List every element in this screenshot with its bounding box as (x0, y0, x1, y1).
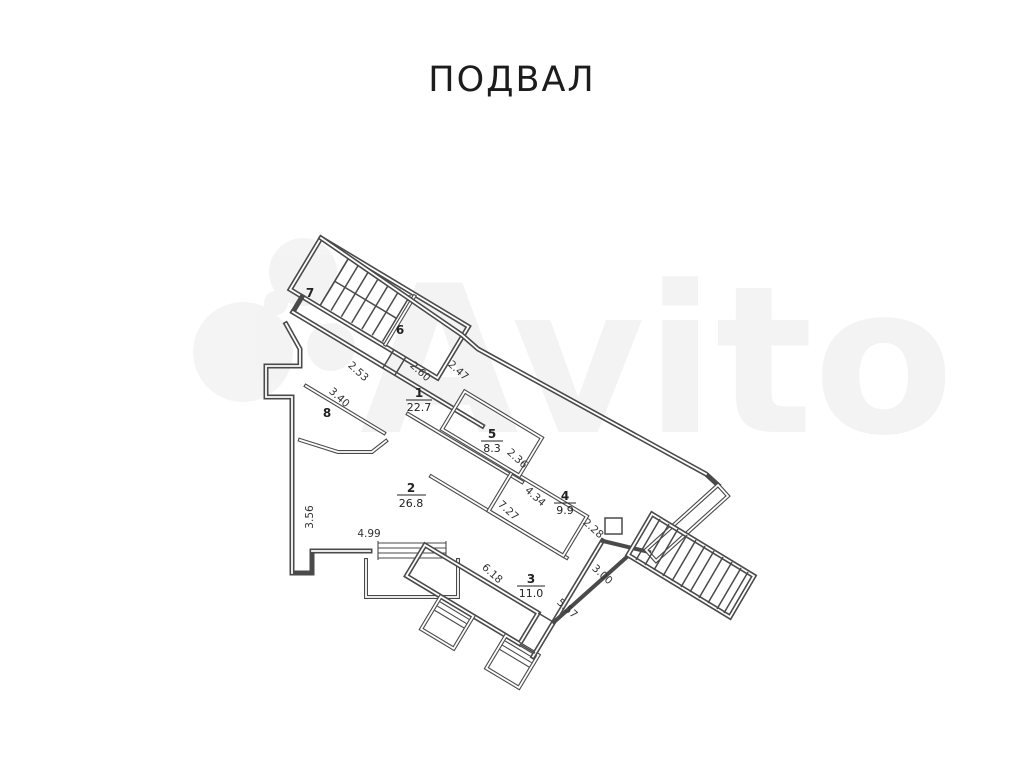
staircase-right-treads (636, 519, 748, 613)
dim-2-28: 2.28 (580, 516, 605, 541)
svg-text:2: 2 (407, 481, 415, 495)
watermark-logo-circles (193, 238, 355, 402)
shaft-box (605, 518, 622, 534)
dim-3-00: 3.00 (589, 562, 614, 587)
room-label-8: 8 (323, 406, 331, 420)
svg-text:1: 1 (415, 386, 423, 400)
room-label-7: 7 (306, 286, 314, 300)
room-label-2: 2 26.8 (397, 481, 426, 510)
dim-3-56: 3.56 (304, 505, 316, 529)
watermark: Avito (193, 238, 954, 481)
wing-right (554, 485, 754, 622)
svg-text:4: 4 (561, 489, 569, 503)
svg-text:22.7: 22.7 (407, 401, 432, 414)
room-label-6: 6 (396, 323, 404, 337)
svg-text:9.9: 9.9 (556, 504, 574, 517)
svg-text:11.0: 11.0 (519, 587, 544, 600)
floor-plan: Avito (0, 0, 1024, 768)
room-label-3: 3 11.0 (517, 572, 545, 600)
bay-window-room3-left (421, 596, 473, 648)
screenshot-stage: ПОДВАЛ Avito (0, 0, 1024, 768)
room-label-4: 4 9.9 (554, 489, 576, 517)
svg-text:3: 3 (527, 572, 535, 586)
dim-4-99: 4.99 (357, 528, 380, 540)
bay-window-room3-right (486, 636, 538, 688)
svg-text:8.3: 8.3 (483, 442, 501, 455)
svg-text:5: 5 (488, 427, 496, 441)
dim-4-34: 4.34 (522, 484, 548, 509)
svg-text:26.8: 26.8 (399, 497, 424, 510)
